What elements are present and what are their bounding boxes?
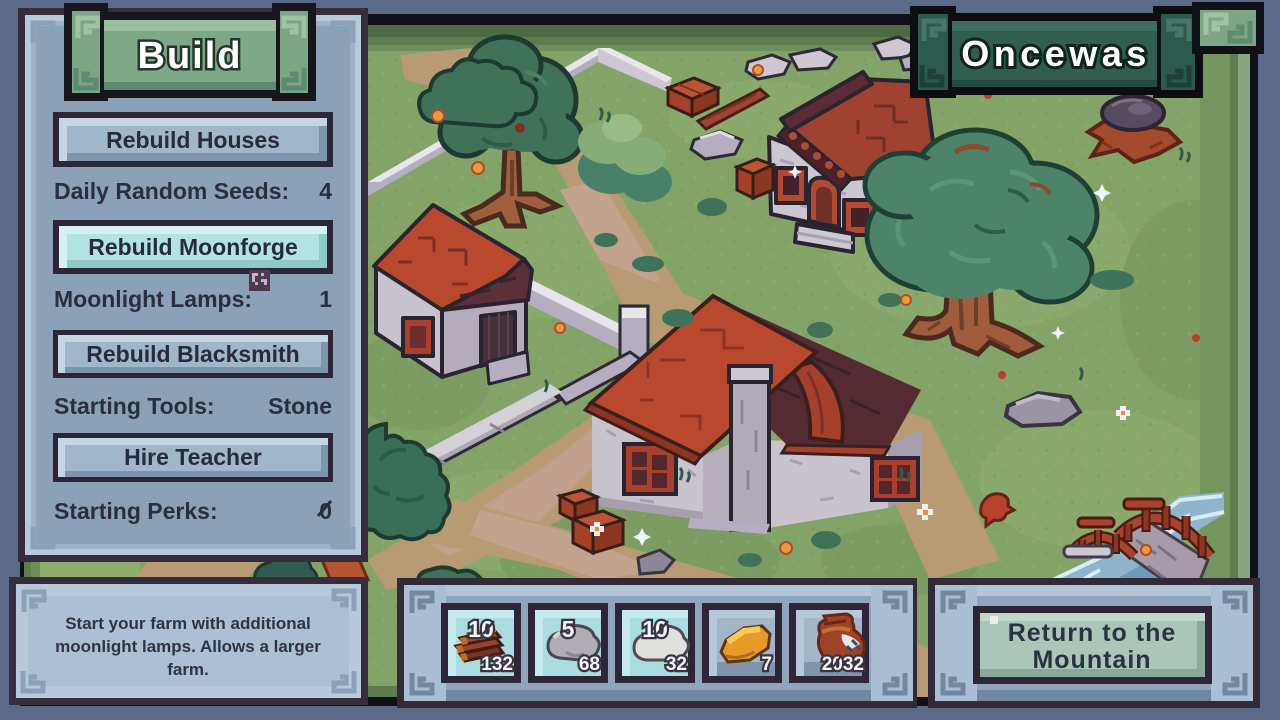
- svg-text:Hire Teacher: Hire Teacher: [124, 444, 262, 470]
- svg-text:Starting Tools:: Starting Tools:: [54, 393, 215, 419]
- svg-text:1: 1: [319, 286, 332, 312]
- svg-text:Daily Random Seeds:: Daily Random Seeds:: [54, 178, 289, 204]
- svg-text:Oncewas: Oncewas: [961, 33, 1151, 74]
- svg-text:32: 32: [666, 654, 687, 675]
- svg-text:farm.: farm.: [167, 660, 209, 679]
- svg-text:Build: Build: [138, 35, 243, 77]
- svg-text:132: 132: [481, 654, 513, 675]
- svg-text:10: 10: [468, 616, 494, 642]
- svg-text:Starting Perks:: Starting Perks:: [54, 498, 218, 524]
- svg-text:Mountain: Mountain: [1032, 646, 1151, 674]
- svg-text:Rebuild Houses: Rebuild Houses: [106, 127, 280, 153]
- svg-text:7: 7: [761, 654, 772, 675]
- svg-text:Rebuild Blacksmith: Rebuild Blacksmith: [86, 341, 299, 367]
- svg-text:Stone: Stone: [268, 393, 332, 419]
- svg-text:moonlight lamps. Allows a larg: moonlight lamps. Allows a larger: [55, 637, 321, 656]
- svg-text:2032: 2032: [822, 654, 864, 675]
- svg-text:Rebuild Moonforge: Rebuild Moonforge: [88, 234, 298, 260]
- svg-text:4: 4: [319, 178, 332, 204]
- svg-text:Start your farm with additiona: Start your farm with additional: [65, 614, 311, 633]
- svg-text:68: 68: [579, 654, 600, 675]
- svg-text:Return to the: Return to the: [1008, 619, 1177, 647]
- svg-text:Moonlight Lamps:: Moonlight Lamps:: [54, 286, 252, 312]
- svg-text:10: 10: [642, 616, 668, 642]
- svg-text:5: 5: [562, 616, 575, 642]
